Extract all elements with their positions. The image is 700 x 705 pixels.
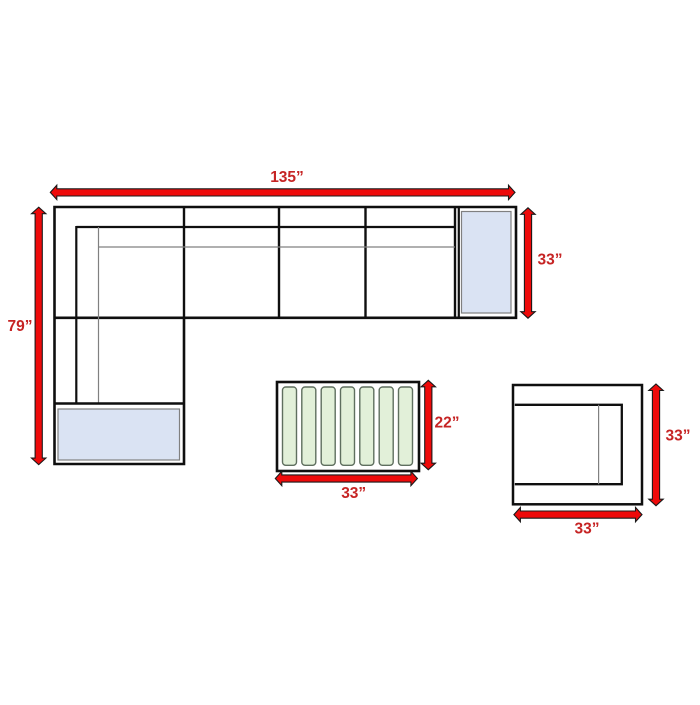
svg-text:22”: 22” bbox=[435, 415, 460, 432]
svg-text:79”: 79” bbox=[8, 318, 33, 335]
svg-text:33”: 33” bbox=[666, 428, 691, 445]
svg-text:33”: 33” bbox=[341, 485, 366, 502]
svg-text:33”: 33” bbox=[538, 252, 563, 269]
svg-text:33”: 33” bbox=[575, 521, 600, 538]
svg-text:135”: 135” bbox=[270, 169, 304, 186]
